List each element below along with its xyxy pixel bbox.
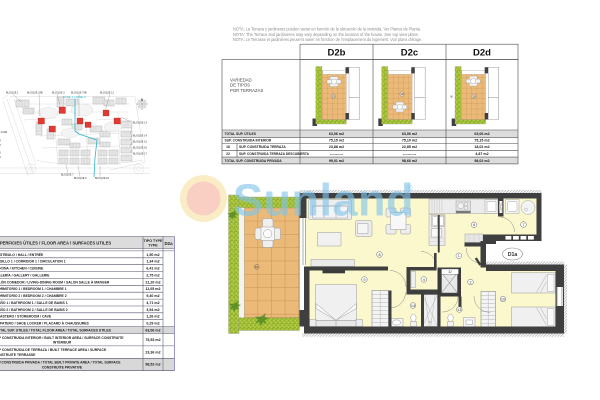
svg-text:4,87 m2: 4,87 m2 (475, 152, 488, 156)
svg-text:2,75 m2: 2,75 m2 (146, 273, 159, 277)
svg-text:BAÑO 1 / BATHROOM 1 / SALLE DE: BAÑO 1 / BATHROOM 1 / SALLE DE BAINS 1 (0, 300, 68, 305)
svg-text:TOTAL SUP. CONSTRUIDA PRIVADA: TOTAL SUP. CONSTRUIDA PRIVADA (225, 159, 283, 163)
svg-text:BLOQUE 15: BLOQUE 15 (133, 141, 148, 144)
svg-text:11,05 m2: 11,05 m2 (146, 287, 161, 291)
svg-text:-----------: ----------- (330, 152, 344, 156)
svg-text:FASE 1 | FASE 2: FASE 1 | FASE 2 (63, 95, 86, 99)
svg-text:D2b: D2b (328, 47, 346, 58)
svg-text:SALÓN COMEDOR / LIVING-DINING: SALÓN COMEDOR / LIVING-DINING ROOM / SAL… (0, 279, 110, 284)
svg-text:18,02 m2: 18,02 m2 (474, 145, 489, 149)
svg-text:21,20 m2: 21,20 m2 (145, 280, 160, 284)
svg-text:7: 7 (522, 223, 524, 227)
svg-text:-----------: ----------- (403, 152, 417, 156)
svg-text:SUP. CONSTRUIDA TERRAZA DESCUB: SUP. CONSTRUIDA TERRAZA DESCUBIERTA (239, 152, 310, 156)
svg-text:1,50 m2: 1,50 m2 (146, 253, 159, 257)
svg-text:Sunland: Sunland (233, 175, 414, 226)
svg-text:D2c: D2c (401, 47, 418, 58)
svg-text:TIPO TYPE: TIPO TYPE (144, 239, 163, 243)
svg-text:BLOQUE 17: BLOQUE 17 (133, 153, 148, 156)
svg-text:1,26 m2: 1,26 m2 (146, 315, 159, 319)
svg-text:VARIEDAD: VARIEDAD (230, 77, 252, 82)
svg-text:NOTA: Le Terrasse et jardinièr: NOTA: Le Terrasse et jardinières peuvent… (233, 37, 422, 42)
svg-text:DORMITORIO 1 / BEDROOM 1 / CHA: DORMITORIO 1 / BEDROOM 1 / CHAMBRE 1 (0, 287, 67, 291)
svg-text:63,06 m2: 63,06 m2 (329, 132, 344, 136)
svg-text:CONSTRUITE PRIVATIVE: CONSTRUITE PRIVATIVE (42, 365, 83, 369)
svg-text:63,06 m2: 63,06 m2 (402, 132, 417, 136)
svg-text:DE TIPOS: DE TIPOS (230, 83, 250, 88)
svg-text:1: 1 (458, 254, 460, 258)
svg-text:TOTAL SUP. UTILES / TOTAL FLOO: TOTAL SUP. UTILES / TOTAL FLOOR AREA / T… (0, 329, 112, 333)
svg-text:SUP.CONSTRUIDA PRIVADA / TOTAL: SUP.CONSTRUIDA PRIVADA / TOTAL BUILT PRI… (0, 361, 121, 365)
svg-text:SUP. CONSTRUIDA INTERIOR: SUP. CONSTRUIDA INTERIOR (225, 139, 272, 143)
svg-text:GALERÍA / GALLERY / GALLERIE: GALERÍA / GALLERY / GALLERIE (0, 272, 50, 277)
svg-text:D1a: D1a (508, 252, 518, 258)
svg-text:®: ® (406, 183, 413, 193)
svg-text:BLOQUE 12: BLOQUE 12 (100, 92, 115, 95)
svg-text:BLOQUE 13: BLOQUE 13 (133, 122, 148, 125)
svg-text:E 6: E 6 (0, 156, 1, 159)
svg-text:SUP CONSTRUIDA DE TERRAZA / B: SUP CONSTRUIDA DE TERRAZA / BUILT TERRAC… (0, 348, 107, 352)
svg-text:BLOQUE 18: BLOQUE 18 (95, 177, 110, 180)
svg-text:98,66 m2: 98,66 m2 (402, 159, 417, 163)
svg-text:23,88 m2: 23,88 m2 (329, 145, 344, 149)
svg-text:1,34 m2: 1,34 m2 (146, 260, 159, 264)
svg-text:4: 4 (423, 278, 425, 282)
svg-text:75,15 m2: 75,15 m2 (329, 139, 344, 143)
svg-text:PASILLO 1 / CORRIDOR 1 / CIRCU: PASILLO 1 / CORRIDOR 1 / CIRCULATION 1 (0, 260, 66, 264)
svg-text:75,15 m2: 75,15 m2 (474, 139, 489, 143)
svg-text:BLOQUE 3: BLOQUE 3 (52, 92, 65, 95)
svg-text:9,40 m2: 9,40 m2 (146, 294, 159, 298)
svg-text:75,10 m2: 75,10 m2 (402, 139, 417, 143)
svg-text:18: 18 (226, 145, 230, 149)
svg-text:99,01 m2: 99,01 m2 (329, 159, 344, 163)
svg-text:2: 2 (469, 280, 471, 284)
svg-text:SUPERFICIES ÚTILES / FLOOR ARE: SUPERFICIES ÚTILES / FLOOR AREA / SURFAC… (0, 241, 111, 246)
svg-text:BLOQUE 9: BLOQUE 9 (74, 177, 87, 180)
svg-text:BLOQUE 74B: BLOQUE 74B (71, 92, 87, 95)
svg-text:4,71 m2: 4,71 m2 (146, 301, 159, 305)
svg-text:TOTAL SUP. ÚTILES: TOTAL SUP. ÚTILES (225, 131, 257, 136)
svg-text:13: 13 (457, 308, 461, 312)
svg-text:16: 16 (400, 92, 404, 96)
svg-text:POR TERRAZAS: POR TERRAZAS (230, 88, 263, 93)
svg-text:TYPE: TYPE (148, 243, 158, 247)
svg-text:10: 10 (501, 297, 505, 301)
svg-text:BLOQUE 7: BLOQUE 7 (61, 174, 74, 177)
svg-text:15: 15 (332, 95, 336, 99)
svg-text:BLOQUE 1: BLOQUE 1 (6, 92, 19, 95)
svg-text:TRASTERO / STOREROOM / CAVE: TRASTERO / STOREROOM / CAVE (0, 315, 52, 319)
svg-text:16: 16 (255, 265, 259, 269)
svg-text:32: 32 (448, 270, 452, 274)
svg-text:6: 6 (473, 223, 475, 227)
svg-text:9: 9 (363, 278, 365, 282)
svg-text:22,85 m2: 22,85 m2 (402, 145, 417, 149)
svg-text:63,06 m2: 63,06 m2 (474, 132, 489, 136)
svg-text:ZAPATERO / SHOE LOCKER / PLACA: ZAPATERO / SHOE LOCKER / PLACARD À CHAUS… (0, 321, 90, 326)
svg-text:✳: ✳ (449, 95, 453, 101)
svg-text:BLOQUE 14: BLOQUE 14 (133, 135, 148, 138)
svg-text:SUP. CONSTRUIDA TERRAZA: SUP. CONSTRUIDA TERRAZA (239, 145, 286, 149)
svg-text:D2a: D2a (164, 241, 173, 246)
svg-text:98,02 m2: 98,02 m2 (474, 159, 489, 163)
svg-text:INTÉRIEUR: INTÉRIEUR (53, 340, 72, 345)
svg-text:CONSTRUITE TERRASSE: CONSTRUITE TERRASSE (0, 353, 36, 357)
svg-text:14: 14 (411, 304, 415, 308)
svg-text:BAÑO 2 / BATHROOM 2 / SALLE DE: BAÑO 2 / BATHROOM 2 / SALLE DE BAINS 2 (0, 307, 68, 312)
svg-text:DORMITORIO 2 / BEDROOM 2 / CHA: DORMITORIO 2 / BEDROOM 2 / CHAMBRE 2 (0, 294, 67, 298)
svg-text:COCINA / KITCHEN / CUISINE: COCINA / KITCHEN / CUISINE (0, 267, 44, 271)
svg-text:D2d: D2d (473, 47, 491, 58)
svg-text:16: 16 (472, 94, 476, 98)
svg-text:E 5: E 5 (0, 152, 1, 155)
svg-text:75,53 m2: 75,53 m2 (145, 338, 160, 342)
svg-text:VESTÍBULO / HALL / ENTRÉE: VESTÍBULO / HALL / ENTRÉE (0, 252, 44, 257)
svg-text:BLOQUE 24B: BLOQUE 24B (27, 92, 43, 95)
svg-text:E 4: E 4 (0, 140, 1, 143)
svg-text:E 8: E 8 (0, 144, 1, 147)
svg-text:3,54 m2: 3,54 m2 (146, 308, 159, 312)
svg-text:22: 22 (226, 152, 230, 156)
svg-text:6,41 m2: 6,41 m2 (146, 267, 159, 271)
svg-text:BLOQUE 16: BLOQUE 16 (133, 147, 148, 150)
svg-text:8: 8 (378, 253, 380, 257)
svg-text:0,29 m2: 0,29 m2 (146, 322, 159, 326)
svg-text:23,36 m2: 23,36 m2 (145, 350, 160, 354)
svg-text:UE 104B: UE 104B (0, 131, 7, 134)
svg-text:63,06 m2: 63,06 m2 (145, 329, 160, 333)
svg-text:SUP CONSTRUIDA INTERIOR / BUIL: SUP CONSTRUIDA INTERIOR / BUILT INTERIOR… (0, 336, 124, 340)
svg-text:98,52 m2: 98,52 m2 (145, 363, 160, 367)
